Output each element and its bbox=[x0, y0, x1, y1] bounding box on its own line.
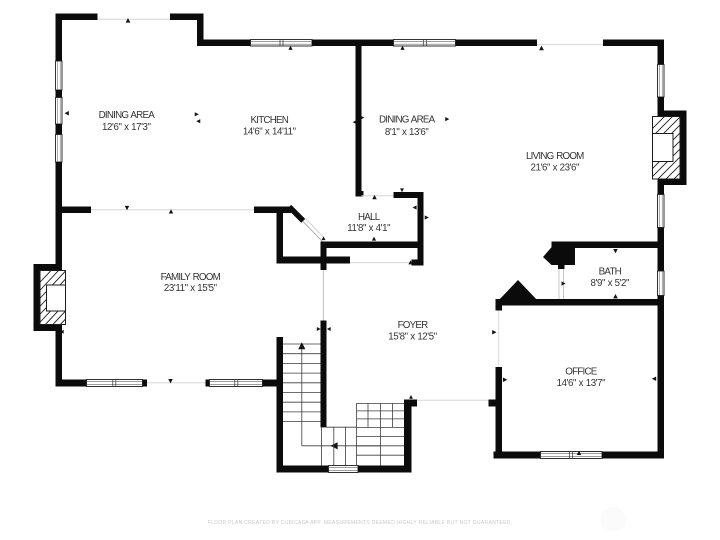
svg-text:OFFICE: OFFICE bbox=[565, 367, 597, 378]
svg-text:FAMILY ROOM: FAMILY ROOM bbox=[161, 272, 221, 283]
svg-text:8'1" x 13'6": 8'1" x 13'6" bbox=[385, 127, 430, 138]
svg-text:LIVING ROOM: LIVING ROOM bbox=[526, 151, 584, 162]
svg-text:8'9" x 5'2": 8'9" x 5'2" bbox=[591, 278, 631, 289]
svg-text:BATH: BATH bbox=[599, 267, 622, 278]
svg-text:FLOOR PLAN CREATED BY CUBICASA: FLOOR PLAN CREATED BY CUBICASA APP. MEAS… bbox=[208, 520, 513, 526]
svg-text:FOYER: FOYER bbox=[398, 320, 429, 331]
svg-text:15'8" x 12'5": 15'8" x 12'5" bbox=[388, 332, 437, 343]
svg-text:21'6" x 23'6": 21'6" x 23'6" bbox=[531, 163, 580, 174]
svg-text:14'6" x 14'11": 14'6" x 14'11" bbox=[243, 127, 297, 138]
svg-text:11'8" x 4'1": 11'8" x 4'1" bbox=[347, 223, 391, 234]
svg-text:14'6" x 13'7": 14'6" x 13'7" bbox=[557, 378, 606, 389]
svg-text:DINING AREA: DINING AREA bbox=[379, 114, 436, 125]
svg-text:DINING AREA: DINING AREA bbox=[99, 110, 156, 121]
svg-text:12'6" x 17'3": 12'6" x 17'3" bbox=[102, 122, 151, 133]
svg-text:23'11" x 15'5": 23'11" x 15'5" bbox=[164, 283, 218, 294]
svg-text:KITCHEN: KITCHEN bbox=[251, 115, 289, 126]
svg-text:HALL: HALL bbox=[358, 212, 381, 223]
